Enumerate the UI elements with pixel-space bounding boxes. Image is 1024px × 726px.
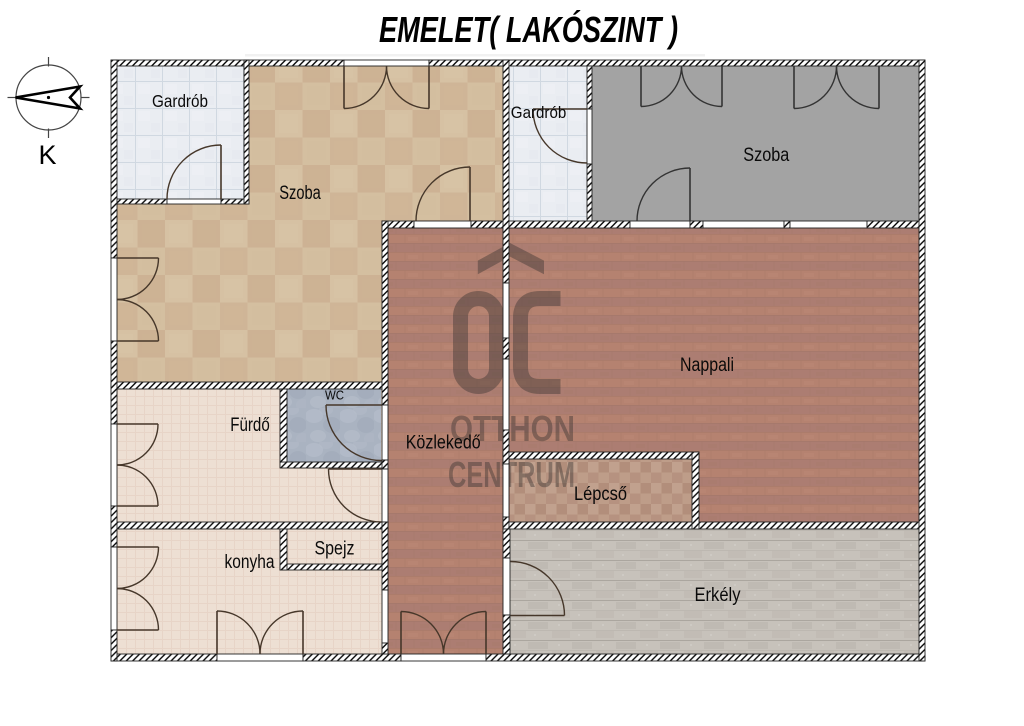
svg-text:CENTRUM: CENTRUM bbox=[448, 454, 575, 495]
svg-text:Erkély: Erkély bbox=[695, 585, 741, 606]
svg-text:WC: WC bbox=[325, 389, 344, 403]
svg-text:Közlekedő: Közlekedő bbox=[406, 433, 481, 454]
svg-text:EMELET( LAKÓSZINT ): EMELET( LAKÓSZINT ) bbox=[379, 9, 678, 50]
svg-text:Nappali: Nappali bbox=[680, 355, 734, 376]
svg-text:K: K bbox=[38, 140, 56, 170]
svg-text:konyha: konyha bbox=[225, 552, 275, 573]
svg-text:Gardrób: Gardrób bbox=[511, 104, 567, 122]
svg-text:Szoba: Szoba bbox=[279, 183, 321, 204]
svg-text:Lépcső: Lépcső bbox=[574, 484, 627, 505]
svg-text:Spejz: Spejz bbox=[315, 539, 355, 560]
svg-text:Fürdő: Fürdő bbox=[230, 415, 270, 436]
svg-text:Gardrób: Gardrób bbox=[152, 91, 208, 111]
svg-text:Szoba: Szoba bbox=[743, 145, 789, 166]
